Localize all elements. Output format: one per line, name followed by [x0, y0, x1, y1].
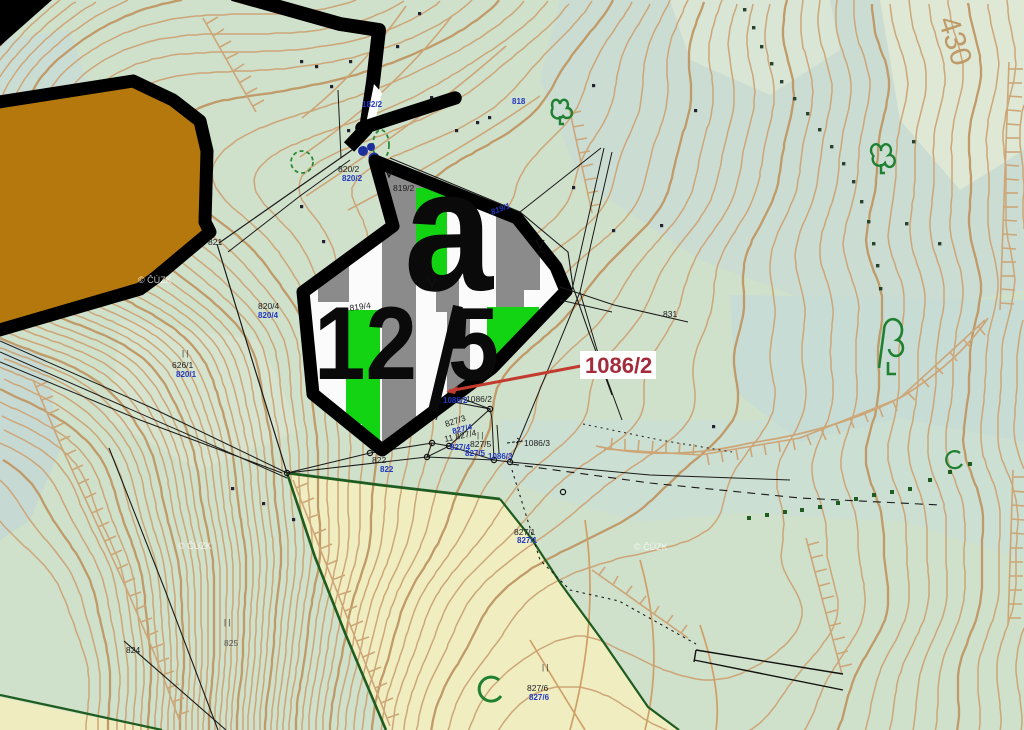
svg-text:© ČÚZK: © ČÚZK	[178, 541, 212, 551]
svg-text:© ČÚZK: © ČÚZK	[634, 542, 668, 552]
svg-text:| |: | |	[477, 431, 483, 440]
svg-text:1086/2: 1086/2	[443, 396, 468, 405]
svg-text:827/6: 827/6	[527, 683, 549, 693]
svg-text:827/5: 827/5	[470, 439, 492, 449]
svg-text:626/1: 626/1	[172, 360, 194, 370]
svg-text:1086/2: 1086/2	[585, 353, 652, 378]
svg-text:| |: | |	[542, 663, 548, 672]
svg-text:824: 824	[126, 645, 140, 655]
svg-text:820/1: 820/1	[176, 370, 197, 379]
svg-text:1086/2: 1086/2	[466, 394, 492, 404]
svg-text:827/1: 827/1	[517, 536, 538, 545]
svg-text:| |: | |	[224, 618, 230, 627]
svg-text:822: 822	[372, 455, 386, 465]
svg-text:820/2: 820/2	[338, 164, 360, 174]
svg-text:820/4: 820/4	[258, 311, 279, 320]
svg-text:1086/3: 1086/3	[524, 438, 550, 448]
svg-text:819/2: 819/2	[393, 183, 415, 193]
svg-text:1086/3: 1086/3	[488, 452, 513, 461]
svg-text:818: 818	[512, 97, 526, 106]
svg-text:827/6: 827/6	[529, 693, 550, 702]
svg-text:| |: | |	[182, 349, 188, 358]
svg-text:827/5: 827/5	[465, 449, 486, 458]
svg-text:820/4: 820/4	[258, 301, 280, 311]
svg-text:182/2: 182/2	[362, 100, 383, 109]
svg-text:821: 821	[208, 237, 222, 247]
svg-text:822: 822	[380, 465, 394, 474]
svg-text:825: 825	[224, 638, 238, 648]
svg-text:820/2: 820/2	[342, 174, 363, 183]
svg-text:© ČÚZK: © ČÚZK	[138, 275, 172, 285]
